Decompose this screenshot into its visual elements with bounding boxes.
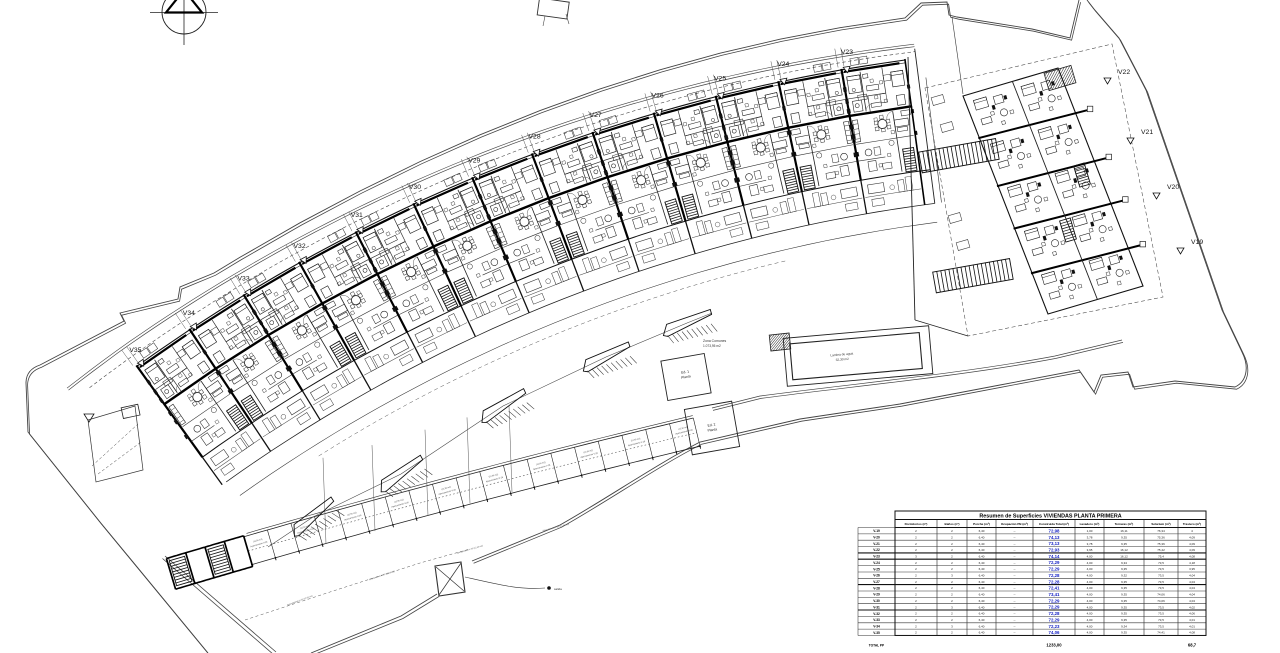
svg-text:9,35: 9,35 (1121, 593, 1127, 597)
svg-text:1233,00: 1233,00 (1046, 643, 1062, 648)
svg-text:73,13: 73,13 (1049, 541, 1061, 546)
svg-text:2: 2 (915, 567, 917, 571)
svg-text:V21: V21 (1141, 129, 1153, 136)
svg-text:74,06: 74,06 (1157, 593, 1165, 597)
svg-text:73,5: 73,5 (1158, 605, 1164, 609)
svg-text:72,29: 72,29 (1049, 567, 1061, 572)
svg-text:4,00: 4,00 (1087, 555, 1093, 559)
svg-text:2: 2 (951, 599, 953, 603)
svg-text:9,35: 9,35 (1121, 580, 1127, 584)
svg-text:2: 2 (915, 586, 917, 590)
svg-text:4,02: 4,02 (1189, 605, 1195, 609)
svg-text:73,5: 73,5 (1158, 561, 1164, 565)
svg-text:4,09: 4,09 (1189, 548, 1195, 552)
svg-text:3: 3 (951, 624, 953, 628)
svg-text:2: 2 (915, 574, 917, 578)
svg-text:9,34: 9,34 (1121, 624, 1127, 628)
svg-text:V-25: V-25 (873, 567, 880, 571)
svg-text:6,40: 6,40 (979, 574, 985, 578)
svg-text:--: -- (1014, 561, 1016, 565)
svg-text:Baños (nº): Baños (nº) (945, 522, 960, 526)
svg-text:2: 2 (915, 605, 917, 609)
svg-text:2: 2 (915, 529, 917, 533)
svg-text:Zona Comunes: Zona Comunes (703, 339, 726, 343)
svg-text:2: 2 (951, 561, 953, 565)
svg-text:6,40: 6,40 (979, 593, 985, 597)
svg-text:2: 2 (951, 542, 953, 546)
svg-text:Dormitorios (nº): Dormitorios (nº) (905, 522, 928, 526)
svg-text:9,32: 9,32 (1121, 574, 1127, 578)
svg-text:V-24: V-24 (873, 561, 880, 565)
svg-text:Construida Total (m²): Construida Total (m²) (1039, 522, 1069, 526)
svg-text:V24: V24 (777, 61, 789, 68)
svg-text:9,35: 9,35 (1121, 618, 1127, 622)
svg-text:3: 3 (951, 605, 953, 609)
svg-text:6,40: 6,40 (979, 542, 985, 546)
svg-text:73,5: 73,5 (1158, 624, 1164, 628)
svg-text:2: 2 (951, 580, 953, 584)
svg-text:--: -- (1014, 536, 1016, 540)
svg-text:6,40: 6,40 (979, 548, 985, 552)
svg-text:V-33: V-33 (873, 618, 880, 622)
svg-text:--: -- (1014, 599, 1016, 603)
svg-text:V-23: V-23 (873, 555, 880, 559)
svg-text:72,29: 72,29 (1049, 598, 1061, 603)
svg-text:2: 2 (951, 555, 953, 559)
svg-text:6,40: 6,40 (979, 529, 985, 533)
svg-text:--: -- (1014, 542, 1016, 546)
svg-text:2: 2 (915, 624, 917, 628)
svg-text:4,00: 4,00 (1087, 624, 1093, 628)
svg-text:72,41: 72,41 (1049, 586, 1061, 591)
svg-text:6,40: 6,40 (979, 599, 985, 603)
svg-text:72,93: 72,93 (1049, 548, 1061, 553)
svg-text:V-26: V-26 (873, 574, 880, 578)
svg-text:4,00: 4,00 (1087, 567, 1093, 571)
svg-text:V-20: V-20 (873, 536, 880, 540)
svg-text:V23: V23 (841, 49, 853, 56)
svg-text:4,00: 4,00 (1087, 593, 1093, 597)
svg-text:76,34: 76,34 (1157, 529, 1165, 533)
svg-text:6,40: 6,40 (979, 586, 985, 590)
svg-text:V-29: V-29 (873, 593, 880, 597)
svg-text:3,78: 3,78 (1087, 536, 1093, 540)
svg-text:32,30 m2: 32,30 m2 (835, 357, 849, 362)
svg-text:4,00: 4,00 (1087, 631, 1093, 635)
svg-text:V25: V25 (714, 76, 726, 83)
svg-text:4,04: 4,04 (1189, 586, 1195, 590)
svg-text:6,40: 6,40 (979, 618, 985, 622)
svg-text:9,35: 9,35 (1121, 586, 1127, 590)
svg-text:6,40: 6,40 (979, 561, 985, 565)
svg-text:Porche (m²): Porche (m²) (973, 522, 990, 526)
svg-text:4,00: 4,00 (1087, 586, 1093, 590)
svg-text:--: -- (1014, 555, 1016, 559)
svg-text:V35: V35 (129, 347, 141, 354)
svg-text:Planta: Planta (681, 374, 691, 380)
svg-text:V-31: V-31 (873, 605, 880, 609)
svg-text:V-35: V-35 (873, 631, 880, 635)
svg-text:V20: V20 (1167, 184, 1179, 191)
svg-text:9,35: 9,35 (1121, 542, 1127, 546)
svg-text:2: 2 (915, 612, 917, 616)
svg-text:3: 3 (915, 555, 917, 559)
svg-text:V28: V28 (529, 134, 541, 141)
svg-text:6,40: 6,40 (979, 605, 985, 609)
svg-text:72,29: 72,29 (1049, 617, 1061, 622)
svg-text:72,28: 72,28 (1049, 579, 1061, 584)
svg-text:Aparcamiento V-35 (12,50 m2): Aparcamiento V-35 (12,50 m2) (542, 523, 569, 533)
svg-text:74,06: 74,06 (1157, 599, 1165, 603)
svg-text:9,35: 9,35 (1121, 599, 1127, 603)
svg-text:73,5: 73,5 (1158, 574, 1164, 578)
svg-text:V26: V26 (652, 93, 664, 100)
svg-text:4,09: 4,09 (1189, 536, 1195, 540)
svg-text:V30: V30 (409, 184, 421, 191)
svg-text:68,7: 68,7 (1188, 643, 1197, 648)
svg-text:9,35: 9,35 (1121, 612, 1127, 616)
svg-text:73,5: 73,5 (1158, 586, 1164, 590)
svg-text:74,41: 74,41 (1157, 631, 1165, 635)
svg-text:V27: V27 (590, 112, 602, 119)
svg-text:4,08: 4,08 (1189, 631, 1195, 635)
svg-text:V22: V22 (1118, 69, 1130, 76)
svg-text:V34: V34 (183, 310, 195, 317)
svg-text:4,00: 4,00 (1087, 561, 1093, 565)
svg-text:4,00: 4,00 (1087, 574, 1093, 578)
svg-text:4,00: 4,00 (1087, 618, 1093, 622)
svg-text:9,35: 9,35 (1121, 567, 1127, 571)
svg-text:74,13: 74,13 (1049, 535, 1061, 540)
svg-text:--: -- (1014, 574, 1016, 578)
svg-text:2: 2 (915, 561, 917, 565)
svg-text:6,40: 6,40 (979, 612, 985, 616)
svg-text:3,95: 3,95 (1087, 548, 1093, 552)
svg-text:Solarium (m²): Solarium (m²) (1151, 522, 1170, 526)
svg-text:73,5: 73,5 (1158, 580, 1164, 584)
svg-text:--: -- (1014, 624, 1016, 628)
svg-text:V31: V31 (351, 212, 363, 219)
svg-text:2: 2 (951, 548, 953, 552)
svg-text:2: 2 (915, 542, 917, 546)
svg-text:75,4: 75,4 (1158, 555, 1164, 559)
svg-text:6,40: 6,40 (979, 536, 985, 540)
svg-text:Aparcamiento V-35 (12,50 m2): Aparcamiento V-35 (12,50 m2) (287, 594, 314, 606)
svg-text:4,00: 4,00 (1087, 612, 1093, 616)
svg-text:V19: V19 (1191, 239, 1203, 246)
svg-text:2: 2 (915, 580, 917, 584)
svg-text:3,78: 3,78 (1087, 542, 1093, 546)
svg-text:--: -- (1014, 612, 1016, 616)
svg-text:2: 2 (915, 536, 917, 540)
svg-text:6,40: 6,40 (979, 631, 985, 635)
svg-text:1.073,95 m2: 1.073,95 m2 (703, 344, 721, 348)
svg-text:2: 2 (915, 618, 917, 622)
svg-text:73,5: 73,5 (1158, 618, 1164, 622)
svg-text:2: 2 (951, 618, 953, 622)
svg-text:V-34: V-34 (873, 625, 880, 629)
svg-text:2: 2 (915, 599, 917, 603)
svg-text:V-21: V-21 (873, 542, 880, 546)
svg-text:4,08: 4,08 (1189, 555, 1195, 559)
svg-text:--: -- (1014, 529, 1016, 533)
svg-text:4,18: 4,18 (1189, 561, 1195, 565)
svg-text:4,04: 4,04 (1189, 599, 1195, 603)
svg-text:72,28: 72,28 (1049, 611, 1061, 616)
svg-text:72,29: 72,29 (1049, 560, 1061, 565)
svg-text:72,29: 72,29 (1049, 605, 1061, 610)
svg-text:4,06: 4,06 (1189, 612, 1195, 616)
svg-text:16,12: 16,12 (1120, 548, 1128, 552)
svg-text:--: -- (1014, 586, 1016, 590)
svg-text:6,40: 6,40 (979, 580, 985, 584)
svg-text:Aparcamiento V-35 (12,50 m2): Aparcamiento V-35 (12,50 m2) (368, 570, 395, 581)
svg-text:2: 2 (951, 567, 953, 571)
svg-text:2: 2 (915, 593, 917, 597)
svg-text:--: -- (1014, 605, 1016, 609)
svg-text:16,11: 16,11 (1120, 529, 1128, 533)
svg-text:Ocupación PB (m²): Ocupación PB (m²) (1001, 522, 1028, 526)
svg-text:9,35: 9,35 (1121, 536, 1127, 540)
svg-text:4,01: 4,01 (1189, 624, 1195, 628)
svg-text:V29: V29 (468, 158, 480, 165)
svg-text:V33: V33 (238, 276, 250, 283)
svg-text:3: 3 (951, 574, 953, 578)
svg-text:salida: salida (554, 587, 562, 591)
svg-text:4,04: 4,04 (1189, 593, 1195, 597)
svg-text:1,00: 1,00 (1087, 529, 1093, 533)
svg-text:2: 2 (915, 631, 917, 635)
svg-text:2: 2 (951, 529, 953, 533)
svg-text:75,42: 75,42 (1157, 548, 1165, 552)
svg-text:--: -- (1014, 631, 1016, 635)
svg-text:V-27: V-27 (873, 580, 880, 584)
svg-text:--: -- (1014, 618, 1016, 622)
svg-text:Trastero (m²): Trastero (m²) (1183, 522, 1201, 526)
svg-text:72,23: 72,23 (1049, 624, 1061, 629)
svg-text:4,01: 4,01 (1189, 618, 1195, 622)
svg-text:2: 2 (951, 612, 953, 616)
svg-text:72,98: 72,98 (1049, 529, 1061, 534)
svg-text:Resumen de Superficies VIVIEND: Resumen de Superficies VIVIENDAS PLANTA … (979, 513, 1121, 519)
svg-text:2: 2 (951, 631, 953, 635)
svg-text:V-32: V-32 (873, 612, 880, 616)
svg-text:73,5: 73,5 (1158, 567, 1164, 571)
svg-text:3,95: 3,95 (1189, 567, 1195, 571)
svg-text:V-30: V-30 (873, 599, 880, 603)
svg-text:6,40: 6,40 (979, 624, 985, 628)
svg-text:6,40: 6,40 (979, 567, 985, 571)
svg-text:4,00: 4,00 (1087, 580, 1093, 584)
svg-text:73,41: 73,41 (1049, 592, 1061, 597)
svg-text:Planta: Planta (707, 427, 717, 433)
svg-text:72,28: 72,28 (1049, 573, 1061, 578)
svg-text:--: -- (1014, 548, 1016, 552)
svg-text:--: -- (1014, 593, 1016, 597)
svg-text:4: 4 (1191, 529, 1193, 533)
svg-text:4,04: 4,04 (1189, 580, 1195, 584)
svg-text:9,35: 9,35 (1121, 631, 1127, 635)
svg-text:9,34: 9,34 (1121, 561, 1127, 565)
svg-text:2: 2 (951, 536, 953, 540)
svg-text:4,00: 4,00 (1087, 605, 1093, 609)
svg-text:75,36: 75,36 (1157, 536, 1165, 540)
svg-text:74,06: 74,06 (1049, 630, 1061, 635)
svg-text:V-22: V-22 (873, 548, 880, 552)
svg-text:--: -- (1014, 580, 1016, 584)
svg-text:V32: V32 (294, 243, 306, 250)
svg-text:16,12: 16,12 (1120, 555, 1128, 559)
svg-text:V-19: V-19 (873, 529, 880, 533)
svg-text:--: -- (1014, 567, 1016, 571)
svg-text:2: 2 (915, 548, 917, 552)
svg-text:Aparcamiento V-35 (12,50 m2): Aparcamiento V-35 (12,50 m2) (456, 544, 483, 554)
svg-text:6,40: 6,40 (979, 555, 985, 559)
svg-text:2: 2 (951, 586, 953, 590)
svg-text:TOTAL PP: TOTAL PP (869, 644, 885, 648)
svg-text:Lavadero (m²): Lavadero (m²) (1080, 522, 1100, 526)
svg-text:4,04: 4,04 (1189, 574, 1195, 578)
svg-text:74,14: 74,14 (1049, 554, 1061, 559)
svg-text:V-28: V-28 (873, 586, 880, 590)
svg-text:9,35: 9,35 (1121, 605, 1127, 609)
svg-text:75,36: 75,36 (1157, 542, 1165, 546)
svg-text:2: 2 (951, 593, 953, 597)
svg-text:4,09: 4,09 (1189, 542, 1195, 546)
svg-text:4,00: 4,00 (1087, 599, 1093, 603)
svg-text:Terrazas (m²): Terrazas (m²) (1115, 522, 1134, 526)
svg-text:73,5: 73,5 (1158, 612, 1164, 616)
